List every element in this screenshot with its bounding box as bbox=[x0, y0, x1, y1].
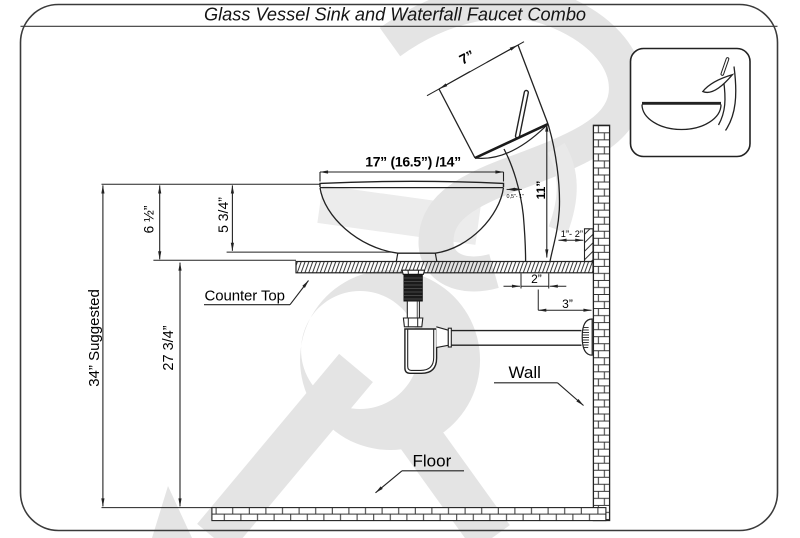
svg-text:Floor: Floor bbox=[413, 452, 452, 471]
svg-text:6 ½”: 6 ½” bbox=[141, 205, 157, 233]
svg-text:0,5”- 1”: 0,5”- 1” bbox=[507, 194, 525, 200]
svg-text:Counter Top: Counter Top bbox=[205, 288, 285, 305]
svg-text:27 3/4”: 27 3/4” bbox=[161, 325, 177, 370]
svg-text:11”: 11” bbox=[534, 181, 548, 200]
svg-text:Wall: Wall bbox=[509, 363, 541, 382]
svg-text:34” Suggested: 34” Suggested bbox=[86, 289, 103, 387]
svg-text:2”: 2” bbox=[531, 272, 542, 286]
svg-text:Glass Vessel Sink and Waterfal: Glass Vessel Sink and Waterfall Faucet C… bbox=[204, 5, 586, 25]
svg-text:1”- 2”: 1”- 2” bbox=[561, 229, 583, 239]
svg-text:17” (16.5”) /14”: 17” (16.5”) /14” bbox=[365, 154, 461, 170]
svg-text:5 3/4”: 5 3/4” bbox=[215, 197, 231, 233]
svg-text:3”: 3” bbox=[562, 297, 573, 311]
